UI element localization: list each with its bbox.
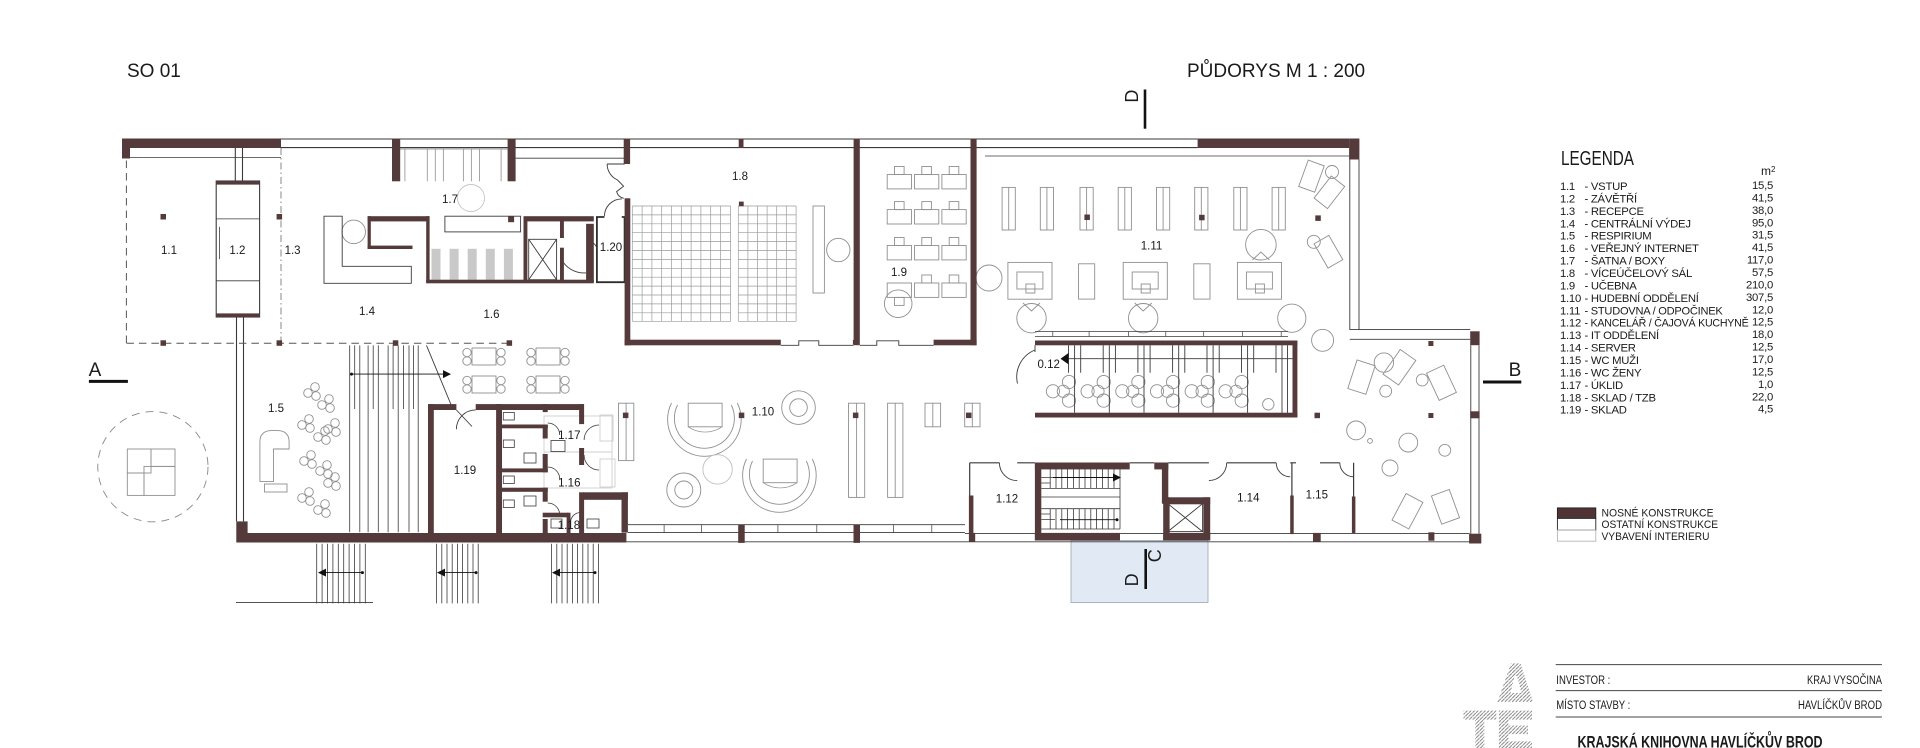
svg-text:- KANCELÁŘ / ČAJOVÁ KUCHYNĚ: - KANCELÁŘ / ČAJOVÁ KUCHYNĚ [1585, 317, 1750, 330]
svg-text:- SERVER: - SERVER [1585, 343, 1636, 355]
svg-text:1.11: 1.11 [1560, 305, 1580, 317]
svg-text:1.17: 1.17 [558, 430, 580, 442]
svg-text:- SKLAD: - SKLAD [1585, 405, 1627, 417]
svg-text:B: B [1509, 360, 1522, 381]
svg-text:D: D [1122, 90, 1142, 103]
svg-text:C: C [1145, 549, 1165, 562]
svg-text:D: D [1122, 573, 1142, 586]
svg-text:- STUDOVNA / ODPOČINEK: - STUDOVNA / ODPOČINEK [1585, 304, 1724, 317]
svg-text:- VEŘEJNÝ INTERNET: - VEŘEJNÝ INTERNET [1585, 242, 1699, 255]
svg-text:- VSTUP: - VSTUP [1585, 181, 1628, 193]
svg-text:1.5: 1.5 [1560, 231, 1575, 243]
svg-text:41,5: 41,5 [1752, 242, 1773, 254]
svg-text:1.18: 1.18 [1560, 392, 1581, 404]
svg-text:- SKLAD / TZB: - SKLAD / TZB [1585, 392, 1656, 404]
svg-text:PŮDORYS M 1 : 200: PŮDORYS M 1 : 200 [1187, 60, 1365, 82]
svg-text:1.14: 1.14 [1237, 493, 1260, 505]
svg-text:1.15: 1.15 [1560, 355, 1581, 367]
svg-text:- WC MUŽI: - WC MUŽI [1585, 354, 1639, 367]
svg-text:- HUDEBNÍ ODDĚLENÍ: - HUDEBNÍ ODDĚLENÍ [1585, 292, 1700, 305]
svg-text:1.2: 1.2 [229, 245, 245, 257]
svg-text:12,5: 12,5 [1752, 317, 1773, 329]
svg-text:1.14: 1.14 [1560, 343, 1581, 355]
svg-text:95,0: 95,0 [1752, 217, 1773, 229]
svg-text:22,0: 22,0 [1752, 391, 1773, 403]
svg-text:1.2: 1.2 [1560, 193, 1575, 205]
svg-text:- WC ŽENY: - WC ŽENY [1585, 367, 1642, 380]
svg-text:307,5: 307,5 [1746, 292, 1773, 304]
svg-text:MÍSTO STAVBY :: MÍSTO STAVBY : [1556, 699, 1630, 712]
svg-text:1.11: 1.11 [1141, 241, 1163, 253]
svg-text:18,0: 18,0 [1752, 329, 1773, 341]
svg-text:1.15: 1.15 [1306, 490, 1328, 502]
svg-text:KRAJ VYSOČINA: KRAJ VYSOČINA [1807, 674, 1882, 687]
svg-text:1.20: 1.20 [600, 242, 622, 254]
svg-text:1.4: 1.4 [359, 306, 376, 318]
svg-text:12,5: 12,5 [1752, 342, 1773, 354]
svg-text:15,5: 15,5 [1752, 180, 1773, 192]
svg-text:1.10: 1.10 [1560, 293, 1581, 305]
svg-text:1.9: 1.9 [891, 267, 907, 279]
svg-text:38,0: 38,0 [1752, 205, 1773, 217]
svg-text:LEGENDA: LEGENDA [1561, 147, 1634, 170]
svg-text:1.3: 1.3 [1560, 206, 1575, 218]
svg-text:- RESPIRIUM: - RESPIRIUM [1585, 231, 1652, 243]
svg-text:1.3: 1.3 [285, 245, 301, 257]
svg-text:1.19: 1.19 [1560, 405, 1581, 417]
svg-text:210,0: 210,0 [1746, 279, 1773, 291]
svg-text:1.6: 1.6 [484, 309, 500, 321]
svg-text:KRAJSKÁ KNIHOVNA HAVLÍČKŮV BR: KRAJSKÁ KNIHOVNA HAVLÍČKŮV BROD [1578, 732, 1823, 748]
svg-text:- VÍCEÚČELOVÝ SÁL: - VÍCEÚČELOVÝ SÁL [1585, 267, 1693, 280]
svg-text:1,0: 1,0 [1758, 379, 1773, 391]
svg-text:41,5: 41,5 [1752, 192, 1773, 204]
svg-text:- CENTRÁLNÍ VÝDEJ: - CENTRÁLNÍ VÝDEJ [1585, 217, 1691, 230]
svg-text:1.17: 1.17 [1560, 380, 1581, 392]
svg-text:SO 01: SO 01 [127, 61, 181, 82]
svg-text:- ÚKLID: - ÚKLID [1585, 379, 1624, 392]
svg-text:OSTATNÍ KONSTRUKCE: OSTATNÍ KONSTRUKCE [1602, 518, 1719, 531]
svg-text:57,5: 57,5 [1752, 267, 1773, 279]
svg-text:1.10: 1.10 [752, 407, 774, 419]
svg-text:1.19: 1.19 [454, 465, 476, 477]
svg-text:1.7: 1.7 [1560, 256, 1575, 268]
svg-text:HAVLÍČKŮV BROD: HAVLÍČKŮV BROD [1798, 699, 1882, 712]
svg-text:31,5: 31,5 [1752, 230, 1773, 242]
svg-text:- ŠATNA / BOXY: - ŠATNA / BOXY [1585, 255, 1666, 268]
svg-text:A: A [89, 360, 102, 381]
svg-text:- ZÁVĚTŘÍ: - ZÁVĚTŘÍ [1585, 192, 1638, 205]
svg-text:1.8: 1.8 [1560, 268, 1575, 280]
svg-text:1.8: 1.8 [732, 171, 748, 183]
svg-text:1.13: 1.13 [1560, 330, 1581, 342]
svg-text:1.16: 1.16 [558, 478, 580, 490]
svg-text:4,5: 4,5 [1758, 404, 1773, 416]
svg-text:1.5: 1.5 [268, 403, 284, 415]
svg-text:117,0: 117,0 [1747, 255, 1773, 267]
svg-text:0.12: 0.12 [1038, 359, 1060, 371]
svg-text:INVESTOR :: INVESTOR : [1556, 675, 1610, 687]
svg-text:1.16: 1.16 [1560, 368, 1581, 380]
svg-text:1.9: 1.9 [1560, 280, 1575, 292]
svg-text:1.7: 1.7 [442, 194, 458, 206]
svg-text:17,0: 17,0 [1752, 354, 1773, 366]
svg-text:1.1: 1.1 [1560, 181, 1575, 193]
svg-text:12,5: 12,5 [1752, 367, 1773, 379]
svg-text:1.18: 1.18 [558, 520, 580, 532]
svg-text:- IT ODDĚLENÍ: - IT ODDĚLENÍ [1585, 329, 1660, 342]
svg-text:VYBAVENÍ INTERIERU: VYBAVENÍ INTERIERU [1602, 530, 1710, 543]
svg-text:12,0: 12,0 [1752, 304, 1773, 316]
svg-text:1.12: 1.12 [1560, 318, 1581, 330]
svg-text:1.4: 1.4 [1560, 218, 1575, 230]
svg-text:- UČEBNA: - UČEBNA [1585, 279, 1638, 292]
svg-text:1.6: 1.6 [1560, 243, 1575, 255]
svg-text:- RECEPCE: - RECEPCE [1585, 206, 1645, 218]
svg-text:NOSNÉ KONSTRUKCE: NOSNÉ KONSTRUKCE [1602, 507, 1714, 520]
svg-text:1.12: 1.12 [996, 494, 1018, 506]
svg-text:1.1: 1.1 [161, 245, 177, 257]
